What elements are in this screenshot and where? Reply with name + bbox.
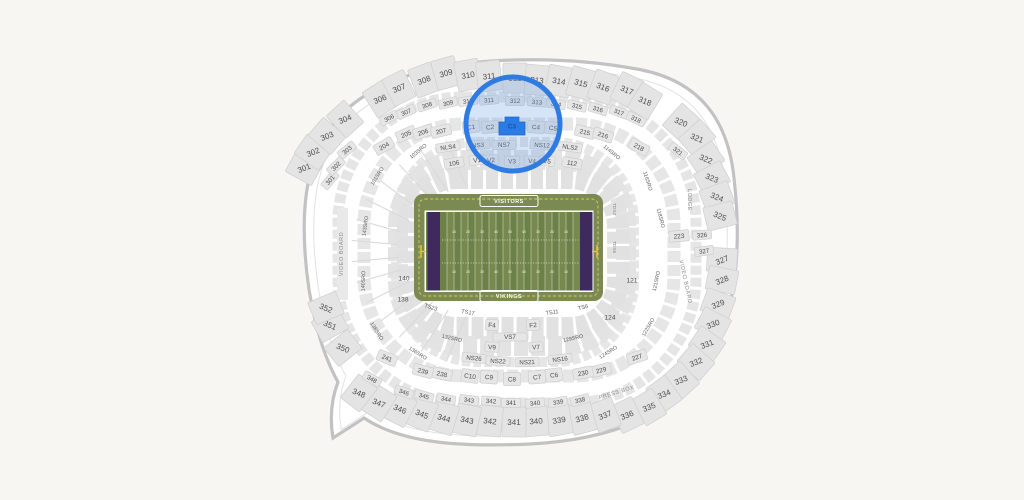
section-NS22[interactable]: NS22 xyxy=(486,356,510,366)
section-TDS6[interactable]: TDS6 xyxy=(611,241,617,254)
section-C10[interactable]: C10 xyxy=(461,368,480,383)
section-label: NS21 xyxy=(519,359,535,367)
section-label: 223 xyxy=(673,233,685,241)
vikings-label: VIKINGS xyxy=(496,294,522,300)
yard-number: 30 xyxy=(536,270,540,274)
section-341[interactable]: 341 xyxy=(502,407,526,437)
section-label: 341 xyxy=(506,400,517,407)
section-V9[interactable]: V9 xyxy=(485,342,500,353)
selected-section-label: C3 xyxy=(508,123,517,130)
section-label: F4 xyxy=(488,322,496,330)
visitors-label: VISITORS xyxy=(494,199,524,205)
lodge-label: LODGE xyxy=(686,189,692,211)
section-label: 342 xyxy=(483,416,498,426)
yard-number: 30 xyxy=(536,230,540,234)
section-342[interactable]: 342 xyxy=(481,396,501,406)
section-VS7[interactable]: VS7 xyxy=(493,333,527,341)
section-C9[interactable]: C9 xyxy=(480,370,498,384)
section-label: NS22 xyxy=(490,358,506,366)
yard-number: 50 xyxy=(508,270,512,274)
yard-number: 10 xyxy=(564,230,568,234)
section-label: C8 xyxy=(508,376,517,383)
yard-number: 10 xyxy=(452,230,456,234)
section-label: 341 xyxy=(507,418,521,427)
section-label: C6 xyxy=(550,372,559,380)
section-label: C9 xyxy=(485,374,494,382)
section-label: 342 xyxy=(486,398,497,406)
section-label: 121 xyxy=(626,277,637,284)
section-label: 138 xyxy=(397,296,408,303)
section-label: 327 xyxy=(699,247,711,255)
section-326[interactable]: 326 xyxy=(692,230,712,241)
section-F4[interactable]: F4 xyxy=(485,319,499,331)
yard-number: 40 xyxy=(494,230,498,234)
section-label: 140 xyxy=(398,275,409,282)
section-TDS2[interactable]: TDS2 xyxy=(611,203,617,216)
football-field: 101020203030404050504040303020201010VISI… xyxy=(414,194,603,302)
yard-number: 40 xyxy=(494,270,498,274)
yard-number: 30 xyxy=(480,270,484,274)
section-label: 340 xyxy=(530,400,542,408)
section-C8[interactable]: C8 xyxy=(504,373,521,386)
video-board-left-label: VIDEO BOARD xyxy=(339,232,345,276)
section-label: VS7 xyxy=(504,334,516,341)
section-C7[interactable]: C7 xyxy=(528,370,546,384)
section-label: V9 xyxy=(488,344,497,351)
section-label: F2 xyxy=(529,322,537,330)
yard-number: 20 xyxy=(550,230,554,234)
stadium-seat-map: 101020203030404050504040303020201010VISI… xyxy=(0,0,1024,500)
section-124[interactable]: 124 xyxy=(604,314,615,321)
section-140[interactable]: 140 xyxy=(398,275,409,282)
section-label: 340 xyxy=(529,416,544,426)
section-223[interactable]: 223 xyxy=(669,230,690,243)
section-C6[interactable]: C6 xyxy=(545,368,563,383)
yard-number: 10 xyxy=(452,270,456,274)
section-label: 124 xyxy=(604,314,615,321)
yard-number: 20 xyxy=(550,270,554,274)
section-NS21[interactable]: NS21 xyxy=(515,357,539,367)
yard-number: 10 xyxy=(564,270,568,274)
section-V7[interactable]: V7 xyxy=(529,342,544,353)
yard-number: 50 xyxy=(508,230,512,234)
section-121[interactable]: 121 xyxy=(626,277,637,284)
section-140SRO[interactable]: 140SRO xyxy=(361,271,368,292)
section-label: 140SRO xyxy=(361,271,368,292)
yard-number: 40 xyxy=(522,230,526,234)
section-label: C7 xyxy=(533,374,542,382)
yard-number: 20 xyxy=(466,270,470,274)
yard-number: 20 xyxy=(466,230,470,234)
yard-number: 40 xyxy=(522,270,526,274)
section-label: V7 xyxy=(532,344,541,351)
section-label: 326 xyxy=(697,232,708,240)
section-F2[interactable]: F2 xyxy=(526,319,540,331)
yard-number: 30 xyxy=(480,230,484,234)
section-138[interactable]: 138 xyxy=(397,296,408,303)
section-341[interactable]: 341 xyxy=(502,399,521,408)
section-340[interactable]: 340 xyxy=(523,405,549,437)
section-label: 343 xyxy=(463,397,475,405)
section-340[interactable]: 340 xyxy=(525,398,545,409)
